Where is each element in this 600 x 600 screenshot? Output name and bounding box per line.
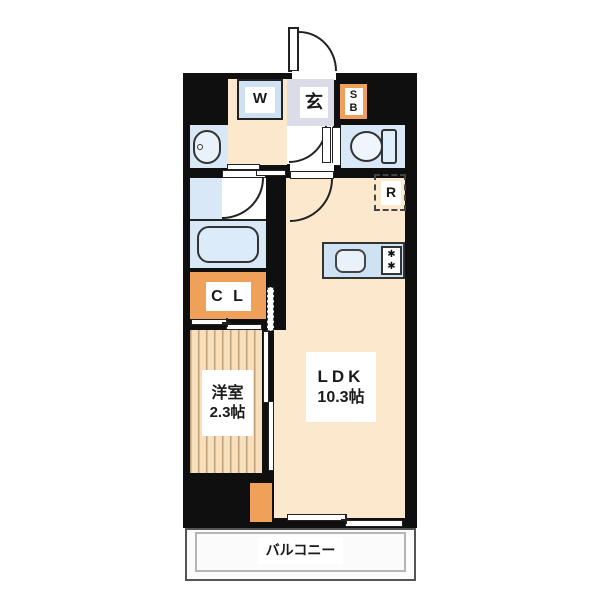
balcony-window-panel-b (345, 520, 403, 527)
closet-label: C L (211, 287, 246, 307)
bathtub (197, 226, 259, 263)
shoebox-label-s: S (350, 89, 357, 102)
ldk-entry-door-leaf (290, 171, 334, 179)
stove-burner-icon: ✱ (387, 249, 395, 261)
pipe-space-block (250, 483, 272, 522)
floorplan-canvas: W 玄 S B C L 洋室 2.3帖 (0, 0, 600, 600)
ldk-label: LDK (318, 366, 365, 387)
closet-slider-junction-mark (222, 318, 231, 327)
ldk-label-box: LDK 10.3帖 (306, 352, 376, 422)
fusuma-panel-a (263, 331, 269, 403)
shoebox-label-b: B (350, 102, 358, 115)
fusuma-pocket-dashed (267, 287, 274, 331)
balcony-label: バルコニー (266, 542, 336, 560)
entrance-door-leaf (288, 27, 299, 72)
tub-divider-line (190, 219, 266, 221)
kitchen-sink (335, 249, 366, 273)
washer-space: W (237, 79, 283, 120)
washroom-slider-panel-b (256, 170, 286, 176)
balcony-window-junction-mark (341, 515, 350, 524)
closet-label-box: C L (206, 282, 251, 311)
western-room-label: 洋室 (211, 384, 243, 404)
washer-label: W (253, 90, 267, 109)
toilet-tank (381, 129, 397, 164)
refrigerator-label-box: R (381, 181, 401, 205)
balcony-window-panel-a (287, 514, 347, 521)
toilet-bowl (350, 131, 383, 162)
western-room-label-box: 洋室 2.3帖 (202, 370, 253, 436)
washer-label-box: W (245, 87, 275, 113)
shoebox-label-box: S B (345, 88, 363, 115)
western-room-size: 2.3帖 (210, 404, 246, 423)
stove: ✱ ✱ (381, 246, 402, 275)
hall-door-leaf (322, 127, 331, 163)
shoebox: S B (340, 84, 367, 119)
stove-burner-icon: ✱ (387, 261, 395, 273)
ldk-size: 10.3帖 (317, 388, 364, 408)
toilet-door-leaf (332, 127, 341, 166)
basin-faucet-dot (197, 144, 203, 150)
genkan-label: 玄 (305, 91, 323, 114)
entrance-door-arc (299, 31, 337, 71)
refrigerator-label: R (386, 184, 396, 202)
balcony-label-box: バルコニー (258, 537, 343, 564)
genkan-label-box: 玄 (300, 87, 328, 118)
